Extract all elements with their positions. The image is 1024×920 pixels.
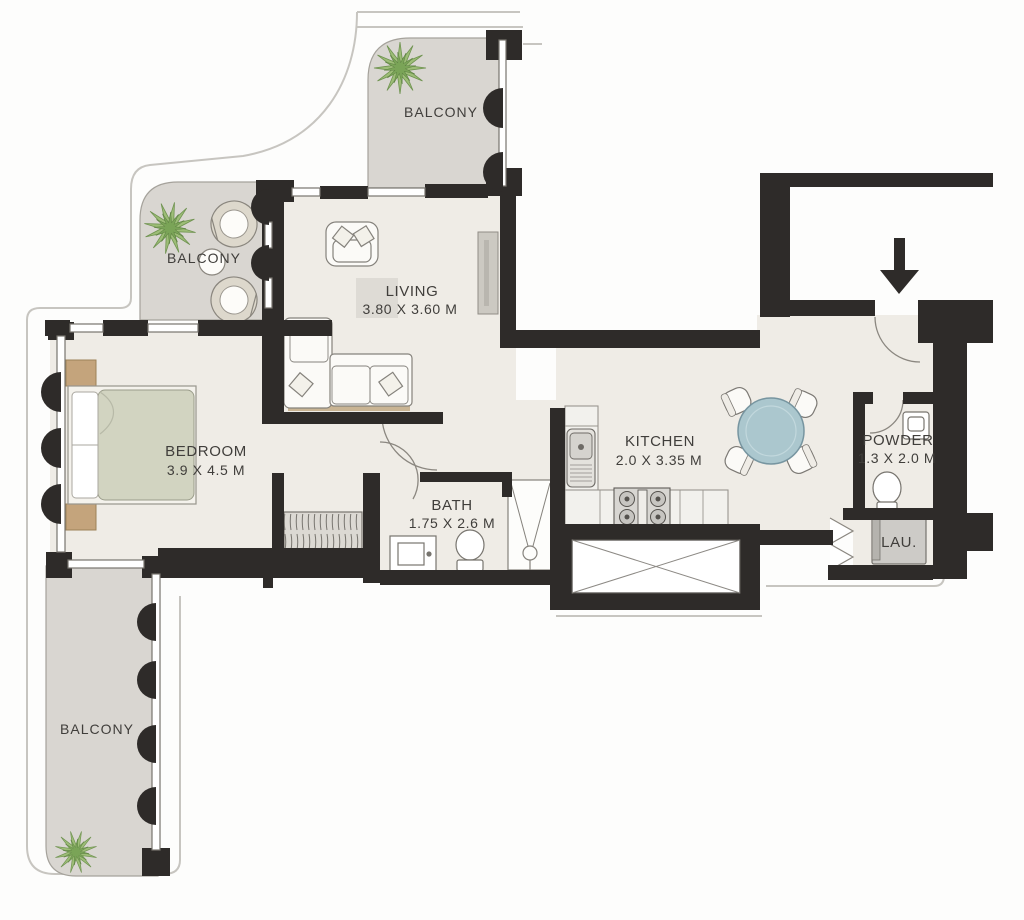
- bedroom-dims: 3.9 X 4.5 M: [167, 462, 245, 478]
- dining-table: [738, 398, 804, 464]
- laundry-label: LAU.: [881, 534, 917, 551]
- balcony-left-label: BALCONY: [167, 250, 241, 266]
- living-label: LIVING: [386, 283, 439, 300]
- shaft-box: [572, 540, 740, 593]
- stove: [614, 488, 670, 528]
- powder-toilet: [873, 472, 901, 511]
- tv-unit: [478, 232, 498, 314]
- nightstand: [66, 360, 96, 386]
- bath-vanity: [390, 536, 436, 572]
- bath-label: BATH: [431, 497, 472, 514]
- kitchen-dims: 2.0 X 3.35 M: [616, 452, 703, 468]
- armchair: [326, 222, 378, 266]
- wardrobe: [284, 512, 362, 550]
- entry-arrow-icon: [880, 238, 919, 294]
- balcony-bottom-label: BALCONY: [60, 721, 134, 737]
- bath-dims: 1.75 X 2.6 M: [409, 515, 496, 531]
- kitchen-sink: [567, 429, 595, 487]
- bath-toilet: [456, 530, 484, 571]
- shower: [508, 480, 553, 570]
- powder-dims: 1.3 X 2.0 M: [858, 450, 936, 466]
- nightstand: [66, 504, 96, 530]
- kitchen-label: KITCHEN: [625, 433, 695, 450]
- bedroom-label: BEDROOM: [165, 443, 247, 460]
- floor-plan-drawing: BALCONY BALCONY BALCONY LIVING 3.80 X 3.…: [0, 0, 1024, 920]
- living-dims: 3.80 X 3.60 M: [363, 301, 458, 317]
- powder-label: POWDER: [862, 432, 933, 449]
- floor-plan: BALCONY BALCONY BALCONY LIVING 3.80 X 3.…: [0, 0, 1024, 920]
- balcony-top-label: BALCONY: [404, 104, 478, 120]
